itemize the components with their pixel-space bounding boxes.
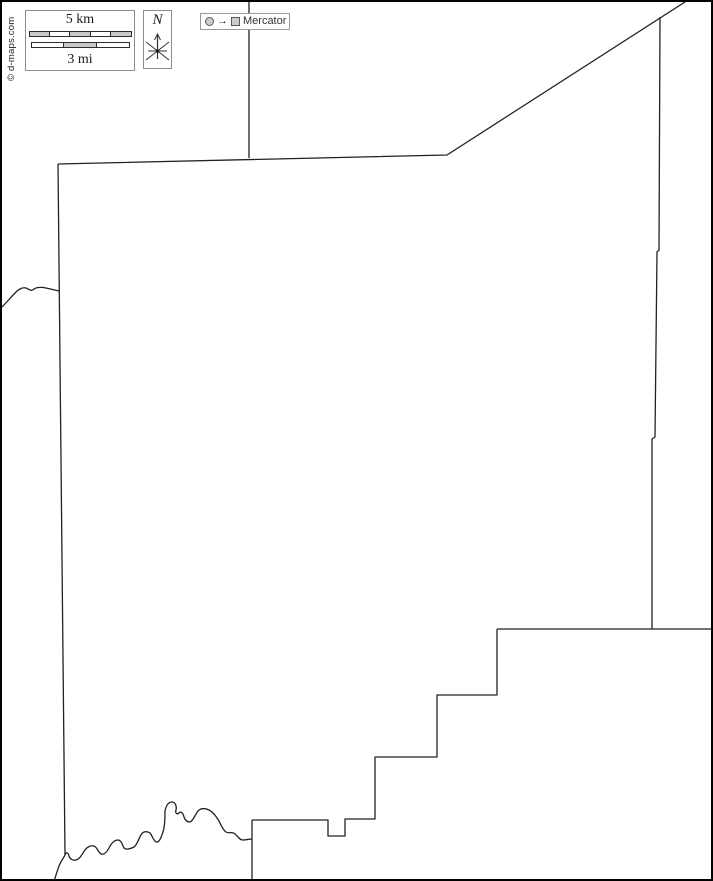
scale-segment xyxy=(69,32,89,36)
scale-segment xyxy=(63,43,96,47)
map-canvas: © d-maps.com 5 km 3 mi N → Mercator xyxy=(0,0,713,881)
scale-segment xyxy=(49,32,69,36)
scale-bar-km xyxy=(29,31,132,37)
projection-box: → Mercator xyxy=(200,13,290,30)
county-southeast-steps xyxy=(252,629,497,836)
scale-segment xyxy=(30,32,49,36)
county-outline-map xyxy=(2,2,713,881)
north-arrow-icon xyxy=(144,29,171,65)
square-icon xyxy=(231,17,240,26)
projection-label: Mercator xyxy=(243,16,286,27)
arrow-right-icon: → xyxy=(217,16,228,27)
county-west-boundary xyxy=(58,164,65,855)
county-east-boundary xyxy=(652,17,660,629)
copyright-text: © d-maps.com xyxy=(6,17,17,81)
west-river-tributary xyxy=(2,287,59,307)
scale-mi-label: 3 mi xyxy=(67,52,92,67)
scale-segment xyxy=(110,32,130,36)
circle-icon xyxy=(205,17,214,26)
south-river-boundary xyxy=(54,802,252,881)
scale-segment xyxy=(90,32,110,36)
scale-bar-box: 5 km 3 mi xyxy=(25,10,135,71)
scale-km-label: 5 km xyxy=(66,12,94,27)
scale-bar-mi xyxy=(31,42,130,48)
scale-segment xyxy=(96,43,129,47)
scale-segment xyxy=(32,43,64,47)
compass-box: N xyxy=(143,10,172,69)
north-label: N xyxy=(152,12,162,29)
